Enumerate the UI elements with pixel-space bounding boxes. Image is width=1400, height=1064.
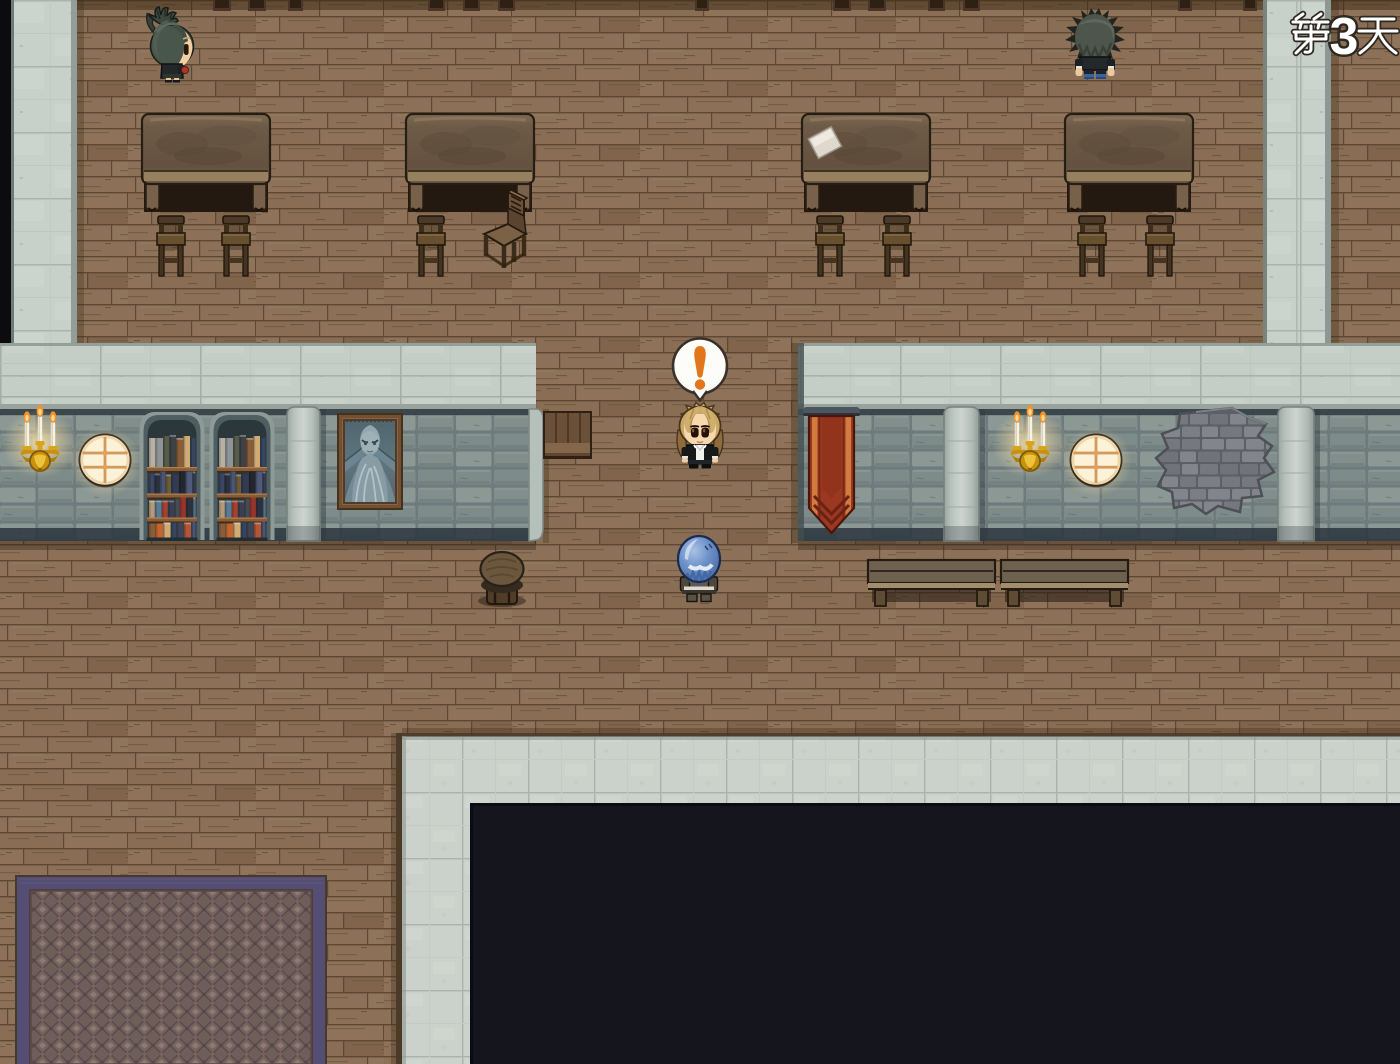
svg-text:3: 3 — [1330, 8, 1359, 66]
